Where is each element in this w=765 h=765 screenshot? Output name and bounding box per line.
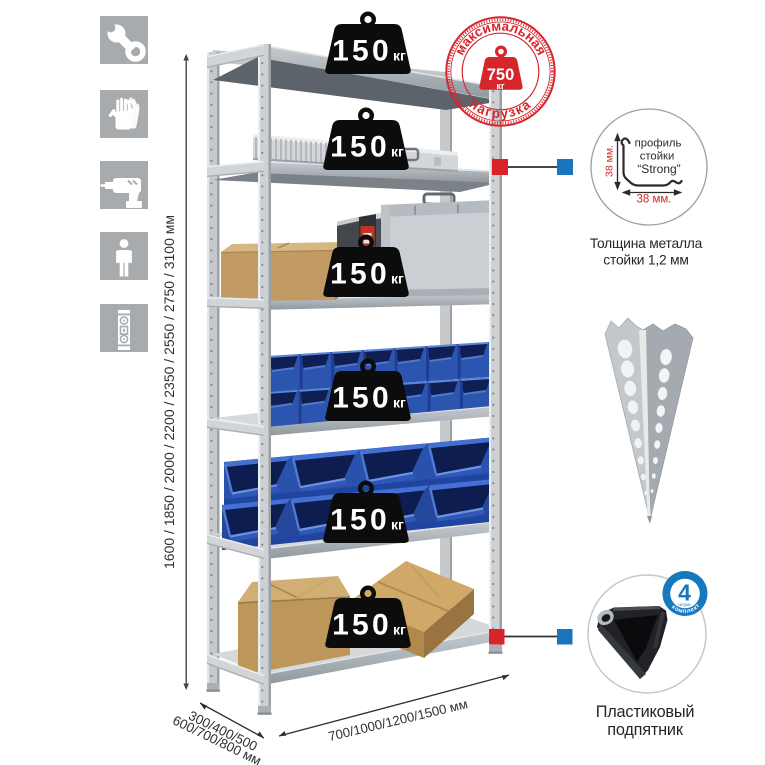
svg-text:38 мм.: 38 мм. (604, 145, 616, 177)
svg-text:Пластиковый: Пластиковый (596, 703, 695, 721)
svg-text:150: 150 (332, 35, 392, 68)
svg-text:38 мм.: 38 мм. (637, 194, 672, 206)
svg-text:кг: кг (393, 48, 406, 64)
svg-text:кг: кг (393, 622, 406, 638)
svg-text:150: 150 (330, 258, 390, 291)
svg-text:Толщина металла: Толщина металла (590, 236, 703, 251)
svg-text:кг: кг (393, 395, 406, 411)
svg-text:стойки 1,2 мм: стойки 1,2 мм (603, 253, 688, 268)
svg-text:кг: кг (391, 271, 404, 287)
svg-text:профиль: профиль (635, 138, 682, 150)
svg-text:150: 150 (332, 382, 392, 415)
svg-text:штуки: штуки (678, 602, 691, 607)
svg-text:“Strong”: “Strong” (637, 162, 680, 176)
svg-text:кг: кг (496, 81, 505, 91)
svg-text:150: 150 (330, 504, 390, 537)
svg-text:150: 150 (332, 609, 392, 642)
svg-text:кг: кг (391, 144, 404, 160)
svg-text:кг: кг (391, 517, 404, 533)
svg-text:150: 150 (330, 131, 390, 164)
svg-text:подпятник: подпятник (607, 721, 684, 739)
svg-text:1600 / 1850 / 2000 / 2200 / 23: 1600 / 1850 / 2000 / 2200 / 2350 / 2550 … (161, 215, 177, 569)
svg-text:стойки: стойки (640, 151, 675, 163)
